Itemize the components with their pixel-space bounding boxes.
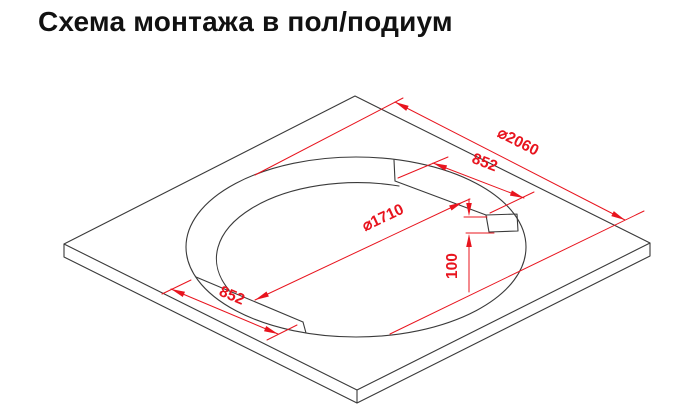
dimension-ledge-width-top: 852 (398, 150, 534, 213)
dimension-label-ledge-width-top: 852 (469, 150, 499, 175)
tab-chord-edge (196, 277, 303, 322)
ledge-tab-top-right (394, 160, 518, 232)
tab-right-end-face (303, 322, 306, 333)
arrowhead (264, 326, 278, 334)
tab-chord-edge (395, 181, 486, 215)
dimension-label-ledge-depth: 100 (444, 253, 461, 279)
dimension-label-outer-diameter: ⌀2060 (495, 124, 542, 159)
dimension-ledge-width-bottom: 852 (162, 280, 297, 340)
arrowhead (171, 289, 185, 297)
arrowhead (466, 234, 472, 247)
arrowhead (611, 211, 625, 220)
dimension-label-inner-diameter: ⌀1710 (360, 201, 407, 235)
arrowhead (395, 102, 409, 111)
ledge-tab-bottom-left (196, 277, 306, 333)
arrowhead (510, 190, 524, 198)
cutout-outer-rim (186, 157, 526, 337)
dimension-line (395, 102, 625, 220)
installation-scheme-page: { "title": "Схема монтажа в пол/подиум",… (0, 0, 681, 416)
dimension-outer-diameter: ⌀2060 (255, 98, 644, 334)
tab-left-end-face (394, 160, 395, 181)
arrowhead (255, 292, 269, 301)
cutout-inner-edge-arc (216, 183, 399, 290)
dimension-line (255, 199, 470, 300)
platform-outline (64, 96, 650, 403)
extension-line (390, 211, 644, 334)
slab-top-face (64, 96, 650, 390)
slab-thickness-edges (64, 243, 650, 403)
dimension-label-ledge-width-bottom: 852 (217, 283, 247, 309)
tab-right-end-face (486, 214, 518, 232)
dimension-ledge-depth: 100 (444, 199, 494, 292)
installation-diagram: ⌀2060 852 852 ⌀1710 100 (0, 0, 681, 416)
dimension-inner-diameter: ⌀1710 (255, 199, 470, 300)
